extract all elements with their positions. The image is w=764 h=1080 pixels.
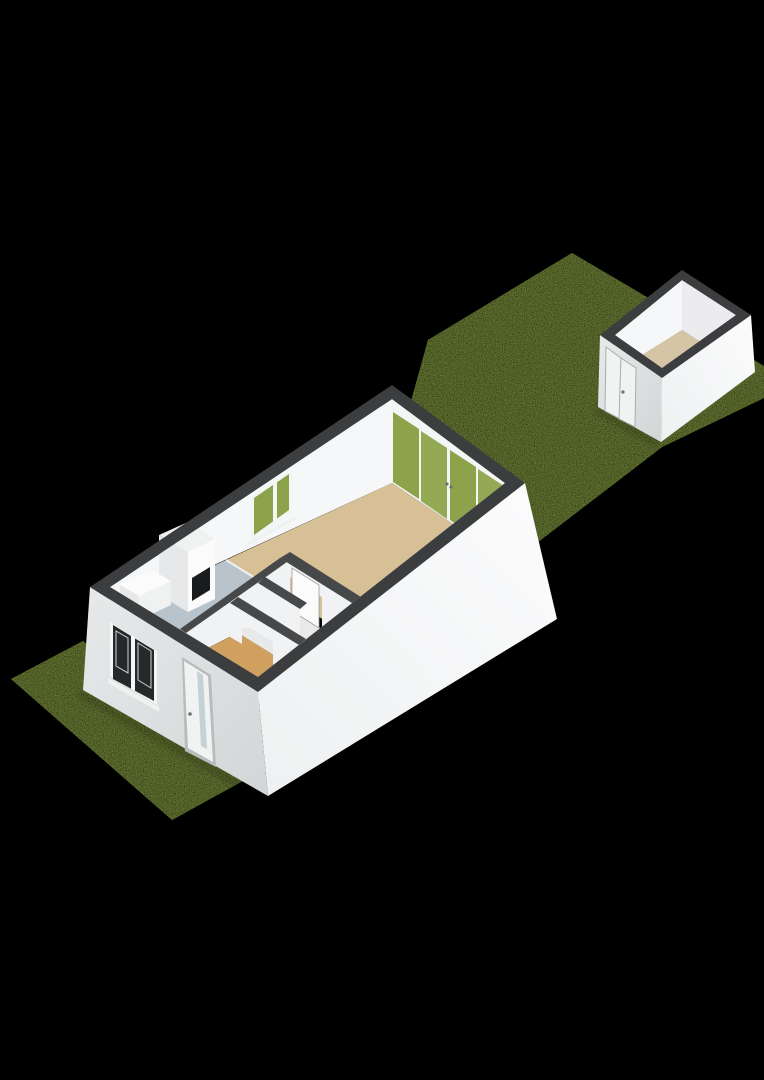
front-window-mullion [131,635,135,691]
floorplan-canvas [0,0,764,1080]
rear-door-handle-left [445,482,448,485]
side-window-mullion [273,476,277,526]
shed-door-left [605,347,621,419]
floorplan-render [0,0,764,1080]
front-door-handle [188,712,192,716]
rear-door-handle-right [449,485,452,488]
shed-door-handle [621,390,624,393]
